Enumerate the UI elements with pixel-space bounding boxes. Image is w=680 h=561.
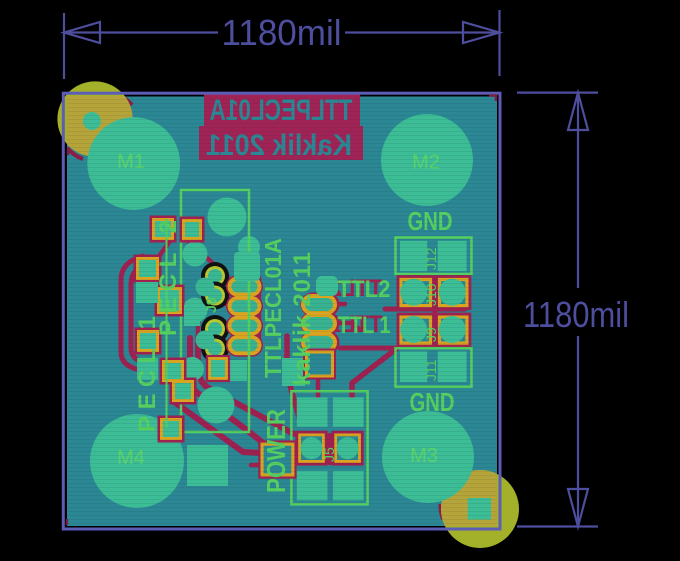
- svg-text:1180mil: 1180mil: [222, 12, 342, 53]
- svg-text:1180mil: 1180mil: [523, 294, 629, 335]
